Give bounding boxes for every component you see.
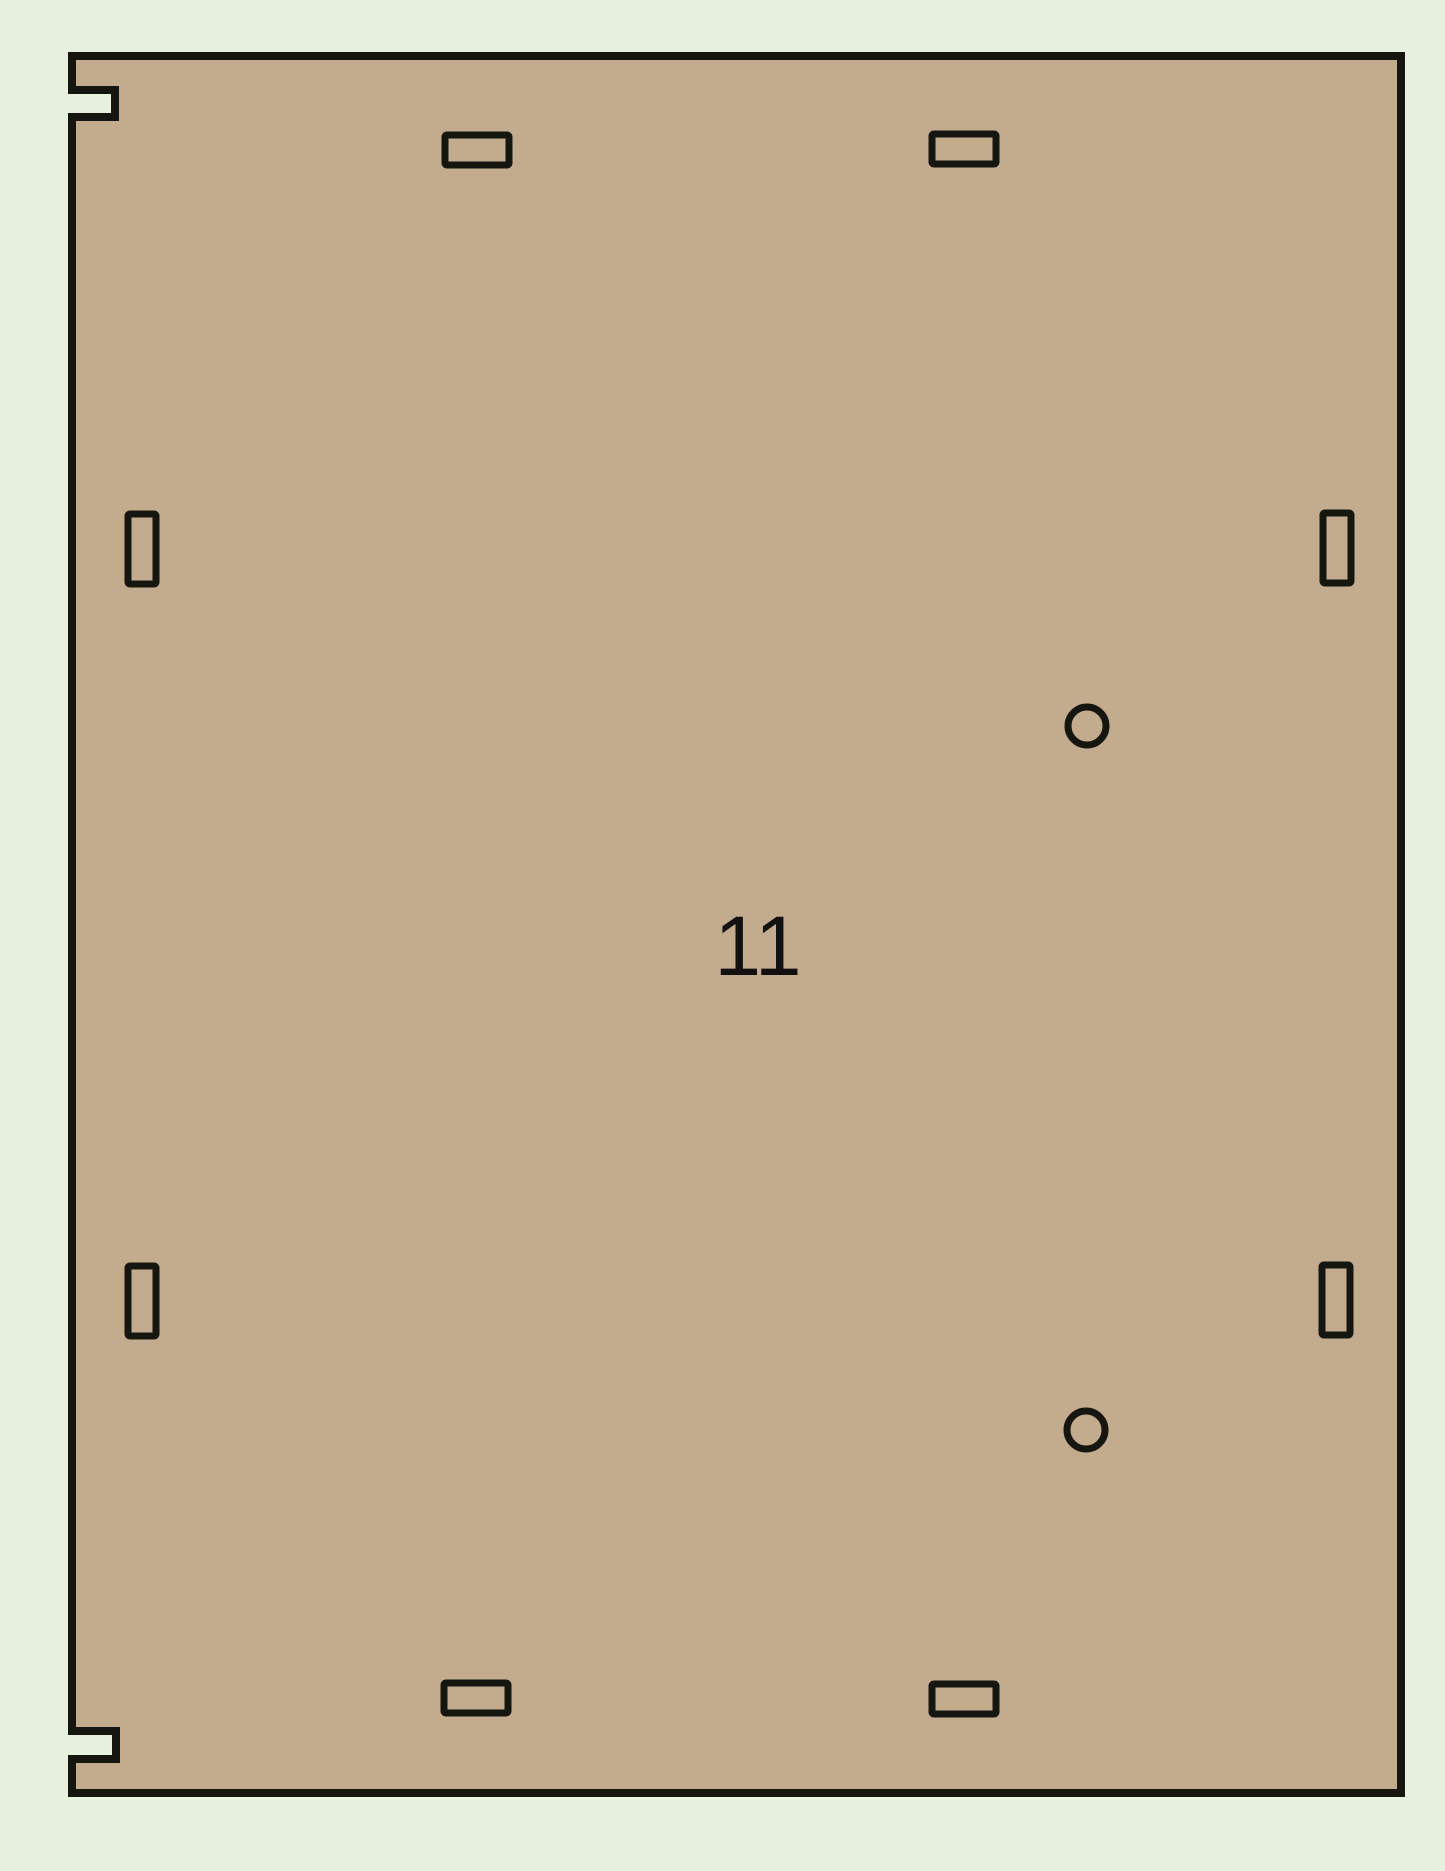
- panel-number-label: 11: [714, 899, 801, 993]
- drawing-canvas: 11: [0, 0, 1445, 1871]
- panel-drawing: 11: [0, 0, 1445, 1871]
